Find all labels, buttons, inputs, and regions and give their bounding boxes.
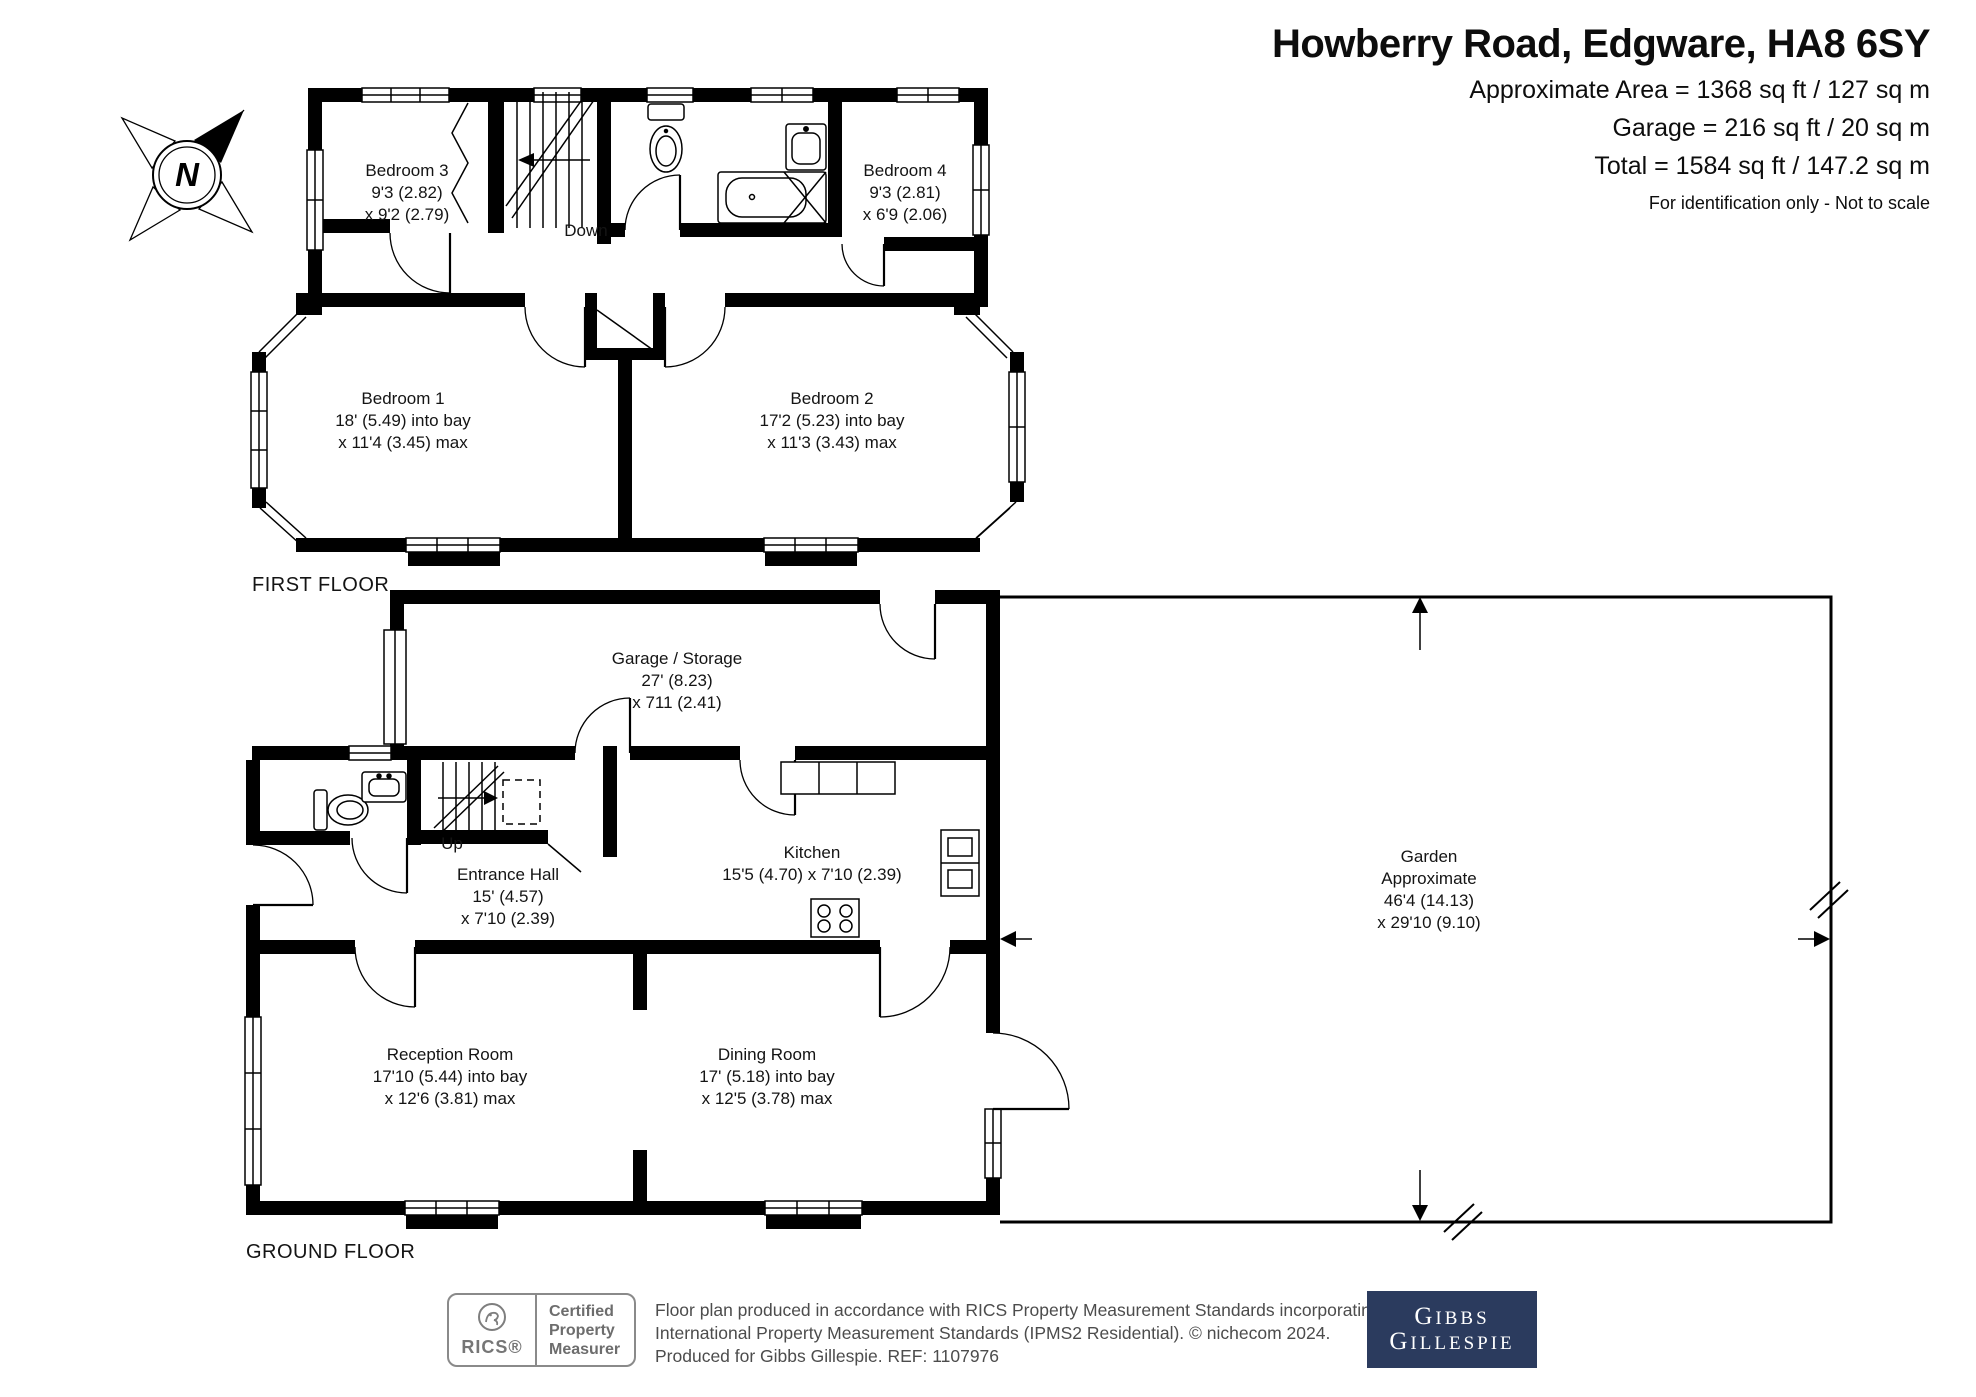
- toilet-icon: [314, 790, 368, 830]
- floorplan-page: Howberry Road, Edgware, HA8 6SY Approxim…: [0, 0, 1976, 1397]
- room-dims: x 12'6 (3.81) max: [373, 1088, 527, 1110]
- window: [973, 145, 989, 235]
- door-garage-rear: [880, 604, 935, 659]
- door-front-entrance: [253, 845, 313, 905]
- kitchen-label: Kitchen 15'5 (4.70) x 7'10 (2.39): [722, 842, 901, 886]
- understairs-cupboard: [503, 780, 540, 824]
- room-dims: 9'3 (2.82): [365, 182, 450, 204]
- room-dims: x 9'2 (2.79): [365, 204, 450, 226]
- window: [765, 1201, 862, 1215]
- garage-door: [384, 630, 406, 744]
- rics-title: Certified Property Measurer: [537, 1295, 634, 1365]
- room-dims: 15'5 (4.70) x 7'10 (2.39): [722, 864, 901, 886]
- window: [1009, 372, 1025, 482]
- stairs-up-label: Up: [441, 834, 463, 854]
- disclaimer-line: Floor plan produced in accordance with R…: [655, 1299, 1381, 1322]
- window: [985, 1109, 1001, 1178]
- room-dims: x 7'10 (2.39): [457, 908, 559, 930]
- room-name: Reception Room: [373, 1044, 527, 1066]
- area-line: Approximate Area = 1368 sq ft / 127 sq m: [1272, 76, 1930, 105]
- rics-brand-label: RICS®: [461, 1337, 522, 1358]
- rics-lion-icon: [475, 1302, 509, 1336]
- room-name: Bedroom 2: [759, 388, 904, 410]
- stairs-direction-arrow: [518, 153, 534, 167]
- first-floor-closet-doors: [452, 103, 468, 223]
- window: [405, 1201, 499, 1215]
- hob-icon: [811, 899, 859, 937]
- room-name: Dining Room: [699, 1044, 835, 1066]
- toilet-icon: [648, 104, 684, 172]
- bedroom3-label: Bedroom 3 9'3 (2.82) x 9'2 (2.79): [365, 160, 450, 226]
- room-dims: Approximate: [1377, 868, 1480, 890]
- bedroom2-label: Bedroom 2 17'2 (5.23) into bay x 11'3 (3…: [759, 388, 904, 454]
- room-name: Entrance Hall: [457, 864, 559, 886]
- window: [307, 150, 323, 250]
- garden-label: Garden Approximate 46'4 (14.13) x 29'10 …: [1377, 846, 1480, 934]
- garage-label: Garage / Storage 27' (8.23) x 711 (2.41): [612, 648, 742, 714]
- area-line: Total = 1584 sq ft / 147.2 sq m: [1272, 152, 1930, 181]
- dining-label: Dining Room 17' (5.18) into bay x 12'5 (…: [699, 1044, 835, 1110]
- window: [647, 88, 693, 102]
- arrow-left-icon: [1000, 931, 1016, 947]
- bathtub-icon: [718, 172, 826, 223]
- window: [751, 88, 813, 102]
- bedroom1-label: Bedroom 1 18' (5.49) into bay x 11'4 (3.…: [335, 388, 471, 454]
- ground-floor-label: GROUND FLOOR: [246, 1241, 415, 1264]
- arrow-down-icon: [1412, 1205, 1428, 1221]
- page-title: Howberry Road, Edgware, HA8 6SY: [1272, 22, 1930, 67]
- stairs-direction-arrow: [484, 791, 498, 805]
- agent-name-line: Gibbs: [1414, 1305, 1489, 1330]
- room-dims: 18' (5.49) into bay: [335, 410, 471, 432]
- rics-certification-badge: RICS® Certified Property Measurer: [447, 1293, 636, 1367]
- room-name: Garden: [1377, 846, 1480, 868]
- sink-icon: [362, 772, 406, 802]
- rics-logo: RICS®: [449, 1295, 537, 1365]
- reception-label: Reception Room 17'10 (5.44) into bay x 1…: [373, 1044, 527, 1110]
- door-wc: [352, 838, 407, 893]
- window: [362, 88, 449, 102]
- room-dims: 17'2 (5.23) into bay: [759, 410, 904, 432]
- window: [245, 1017, 261, 1185]
- disclaimer-text: Floor plan produced in accordance with R…: [655, 1299, 1381, 1368]
- door-bedroom4: [842, 244, 884, 286]
- window: [349, 746, 391, 760]
- compass-north-label: N: [166, 153, 208, 197]
- door-bedroom1: [525, 307, 585, 367]
- door-bedroom2: [665, 307, 725, 367]
- first-floor-windows: [251, 88, 1025, 552]
- entrance-hall-label: Entrance Hall 15' (4.57) x 7'10 (2.39): [457, 864, 559, 930]
- window: [897, 88, 959, 102]
- room-name: Garage / Storage: [612, 648, 742, 670]
- gibbs-gillespie-logo: Gibbs Gillespie: [1367, 1291, 1537, 1368]
- ground-floor-windows: [245, 630, 1001, 1215]
- door-bedroom3: [390, 233, 450, 293]
- room-dims: 15' (4.57): [457, 886, 559, 908]
- door-dining: [880, 947, 950, 1017]
- room-name: Bedroom 3: [365, 160, 450, 182]
- door-garden-french: [993, 1033, 1069, 1109]
- room-dims: x 11'4 (3.45) max: [335, 432, 471, 454]
- rics-title-line: Measurer: [549, 1340, 620, 1359]
- room-dims: 17'10 (5.44) into bay: [373, 1066, 527, 1088]
- disclaimer-line: International Property Measurement Stand…: [655, 1322, 1381, 1345]
- room-dims: 46'4 (14.13): [1377, 890, 1480, 912]
- boundary-break-marks: [1444, 882, 1848, 1240]
- room-dims: x 29'10 (9.10): [1377, 912, 1480, 934]
- ground-floor-stairs: [434, 762, 581, 872]
- arrow-up-icon: [1412, 597, 1428, 613]
- arrow-right-icon: [1814, 931, 1830, 947]
- agent-name-line: Gillespie: [1389, 1330, 1514, 1355]
- disclaimer-line: Produced for Gibbs Gillespie. REF: 11079…: [655, 1345, 1381, 1368]
- header: Howberry Road, Edgware, HA8 6SY Approxim…: [1272, 22, 1930, 214]
- door-cupboard: [597, 310, 653, 350]
- kitchen-counter: [781, 762, 895, 794]
- sink-icon: [786, 124, 826, 170]
- window: [764, 538, 858, 552]
- window: [251, 372, 267, 488]
- window: [534, 88, 581, 102]
- room-dims: x 711 (2.41): [612, 692, 742, 714]
- room-dims: x 11'3 (3.43) max: [759, 432, 904, 454]
- first-floor-bathroom-fixtures: [648, 104, 826, 223]
- door-bathroom: [625, 175, 680, 230]
- room-name: Bedroom 4: [863, 160, 948, 182]
- room-dims: 27' (8.23): [612, 670, 742, 692]
- rics-title-line: Certified: [549, 1302, 620, 1321]
- room-name: Kitchen: [722, 842, 901, 864]
- room-dims: 17' (5.18) into bay: [699, 1066, 835, 1088]
- room-dims: 9'3 (2.81): [863, 182, 948, 204]
- scale-note: For identification only - Not to scale: [1272, 193, 1930, 214]
- room-dims: x 6'9 (2.06): [863, 204, 948, 226]
- room-dims: x 12'5 (3.78) max: [699, 1088, 835, 1110]
- rics-title-line: Property: [549, 1321, 620, 1340]
- door-reception: [355, 947, 415, 1007]
- bedroom4-label: Bedroom 4 9'3 (2.81) x 6'9 (2.06): [863, 160, 948, 226]
- area-line: Garage = 216 sq ft / 20 sq m: [1272, 114, 1930, 143]
- first-floor-label: FIRST FLOOR: [252, 574, 389, 597]
- fridge-unit: [941, 830, 979, 896]
- first-floor-stairs: [506, 92, 594, 228]
- stairs-down-label: Down: [564, 221, 607, 241]
- window: [406, 538, 500, 552]
- room-name: Bedroom 1: [335, 388, 471, 410]
